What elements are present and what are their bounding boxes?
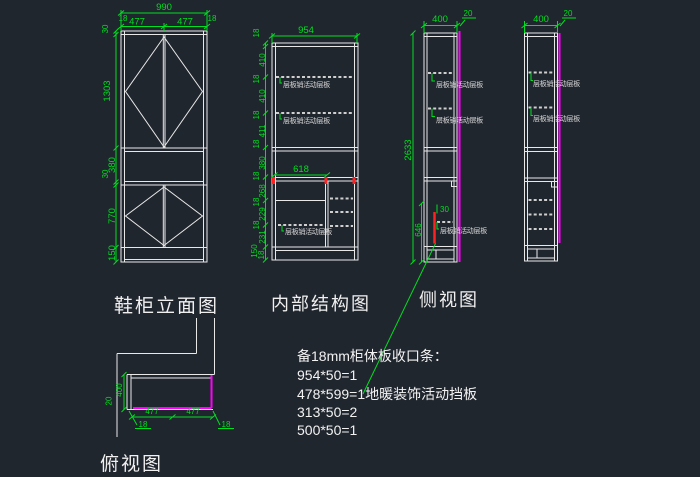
dim-depth: 400 — [533, 14, 549, 25]
note-leader-line — [363, 244, 436, 395]
notes-line: 500*50=1 — [297, 422, 358, 438]
dim-lower-section: 646 — [414, 223, 423, 237]
dim-top-rail: 30 — [101, 24, 110, 33]
dim-edge-left: 18 — [139, 420, 148, 429]
plan-dimensions: 400 20 477 477 18 18 — [105, 372, 235, 429]
dim-side-left: 18 — [119, 14, 128, 23]
dim-door-right: 477 — [186, 407, 200, 416]
dim-chain-item: 18 — [257, 250, 266, 259]
dim-chain-item: 410 — [258, 89, 267, 103]
dim-chain-item: 18 — [252, 197, 261, 206]
cad-canvas: 990 18 477 477 18 30 1303 380 30 770 150… — [0, 0, 700, 477]
dim-door-left: 477 — [145, 407, 159, 416]
internal-caption: 内部结构图 — [271, 294, 371, 314]
dim-lip: 20 — [564, 9, 573, 18]
dim-lip: 20 — [105, 396, 114, 405]
dim-lower-doors: 770 — [107, 208, 118, 224]
plan-caption: 俯视图 — [100, 453, 163, 475]
dim-chain-item: 380 — [258, 156, 267, 170]
movable-shelf-label: 层板销活动层板 — [436, 116, 483, 125]
side-view-1: 层板销活动层板 层板销活动层板 层板销活动层板 400 20 2633 646 … — [363, 9, 487, 394]
dim-chain-item: 229 — [258, 207, 267, 221]
upper-door-diamond — [126, 37, 203, 147]
dim-chain-item: 410 — [258, 53, 267, 67]
dim-total-height: 2633 — [403, 139, 414, 160]
dim-opening: 618 — [293, 164, 309, 175]
notes-line: 954*50=1 — [297, 367, 358, 383]
dim-chain-item: 268 — [258, 184, 267, 198]
plan-cabinet-outline — [127, 375, 215, 410]
dim-side-right: 18 — [208, 14, 217, 23]
dim-depth: 400 — [115, 383, 124, 397]
internal-shelf-leaders — [280, 77, 284, 231]
dim-edge-right: 18 — [222, 420, 231, 429]
dim-gap: 30 — [101, 169, 110, 178]
lower-door-diamond — [126, 187, 203, 246]
dim-gap-30: 30 — [440, 205, 449, 214]
side1-dimensions: 400 20 2633 646 30 — [403, 9, 476, 265]
notes-title: 备18mm柜体板收口条： — [297, 348, 448, 364]
movable-shelf-label: 层板销活动层板 — [283, 80, 330, 89]
internal-dimensions: 954 618 18 410 18 410 18 411 18 380 18 2… — [250, 25, 360, 263]
dim-upper-doors: 1303 — [102, 80, 113, 101]
notes-block: 备18mm柜体板收口条： 954*50=1 478*599=1地暖装饰活动挡板 … — [297, 348, 477, 438]
dim-chain-item: 411 — [258, 124, 267, 137]
notes-line: 313*50=2 — [297, 404, 358, 420]
side-view-2: 层板销活动层板 层板销活动层板 400 20 — [522, 9, 581, 261]
dim-chain-item: 18 — [252, 74, 261, 83]
elevation-view: 990 18 477 477 18 30 1303 380 30 770 150… — [101, 2, 219, 317]
dim-chain-item: 18 — [252, 220, 261, 229]
dim-total-width: 990 — [156, 2, 172, 13]
movable-shelf-label: 层板销活动层板 — [283, 116, 330, 125]
dim-internal-width: 954 — [298, 25, 314, 36]
movable-shelf-label: 层板销活动层板 — [533, 114, 580, 123]
cabinet-drawing: 990 18 477 477 18 30 1303 380 30 770 150… — [0, 0, 700, 477]
dim-chain-item: 18 — [252, 28, 261, 37]
elevation-outline — [121, 31, 207, 262]
side2-dimensions: 400 20 — [522, 9, 577, 33]
dim-chain-item: 18 — [252, 139, 261, 148]
dim-chain-item: 18 — [252, 110, 261, 119]
movable-shelf-label: 层板销活动层板 — [533, 79, 580, 88]
dim-door-right: 477 — [177, 17, 193, 28]
internal-outline — [272, 43, 358, 260]
movable-shelf-label: 层板销活动层板 — [285, 227, 332, 236]
elevation-caption: 鞋柜立面图 — [114, 295, 219, 317]
movable-shelf-label: 层板销活动层板 — [440, 226, 487, 235]
side2-shelf-leaders — [531, 73, 533, 116]
dim-base: 150 — [107, 245, 118, 261]
internal-structure-view: 层板销活动层板 层板销活动层板 层板销活动层板 954 618 18 410 1… — [250, 25, 371, 314]
side2-outline — [525, 33, 558, 261]
dim-door-left: 477 — [129, 17, 145, 28]
elevation-dimensions: 990 18 477 477 18 30 1303 380 30 770 150 — [101, 2, 217, 265]
dim-lip: 20 — [464, 9, 473, 18]
notes-line: 478*599=1地暖装饰活动挡板 — [297, 386, 477, 402]
dim-chain-item: 18 — [252, 171, 261, 180]
dim-chain-item: 231 — [258, 230, 267, 244]
movable-shelf-label: 层板销活动层板 — [436, 80, 483, 89]
dim-depth: 400 — [432, 14, 448, 25]
side-caption: 侧视图 — [419, 290, 479, 310]
plan-view: 400 20 477 477 18 18 俯视图 — [100, 318, 234, 475]
